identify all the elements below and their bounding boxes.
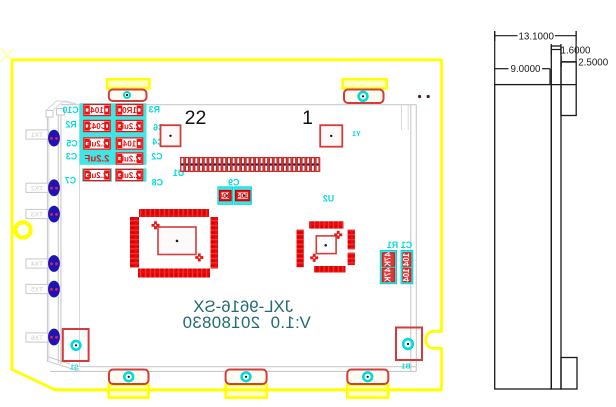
svg-text:TX4: TX4 <box>31 261 43 268</box>
svg-text:104: 104 <box>122 140 136 149</box>
svg-text:47K: 47K <box>384 252 393 267</box>
svg-text:TX3: TX3 <box>31 212 43 219</box>
svg-text:U2: U2 <box>323 193 334 203</box>
svg-text:22: 22 <box>185 107 207 129</box>
svg-text:2.2uF: 2.2uF <box>119 155 140 164</box>
svg-text:C3: C3 <box>66 152 77 162</box>
svg-text:TX6: TX6 <box>31 335 43 342</box>
svg-text:104: 104 <box>219 193 231 200</box>
svg-text:1: 1 <box>302 107 313 129</box>
svg-text:R2: R2 <box>65 119 76 129</box>
svg-text:C043: C043 <box>87 122 107 131</box>
svg-text:TX5: TX5 <box>31 287 43 294</box>
svg-text:2.2uF: 2.2uF <box>86 171 107 180</box>
svg-text:C5: C5 <box>66 138 77 148</box>
svg-text:R3: R3 <box>149 105 160 115</box>
svg-text:C1: C1 <box>401 240 412 250</box>
svg-text:V:1.0 20180830: V:1.0 20180830 <box>182 313 311 332</box>
svg-text:2.5000: 2.5000 <box>578 58 609 69</box>
svg-text:C9: C9 <box>228 177 239 187</box>
svg-text:9.0000: 9.0000 <box>511 64 542 75</box>
svg-text:TX1: TX1 <box>31 132 43 139</box>
svg-text:104: 104 <box>236 193 248 200</box>
svg-text:C8: C8 <box>152 178 163 188</box>
svg-text:S1: S1 <box>70 364 79 371</box>
svg-text:47K: 47K <box>384 268 393 283</box>
svg-text:B1: B1 <box>401 363 410 370</box>
svg-text:1.6000: 1.6000 <box>561 45 592 56</box>
svg-text:C10: C10 <box>62 105 78 115</box>
svg-text:2.2uF: 2.2uF <box>119 122 140 131</box>
svg-text:TX2: TX2 <box>31 185 43 192</box>
svg-text:Y1: Y1 <box>352 131 361 138</box>
svg-text:104: 104 <box>90 106 104 115</box>
svg-text:104: 104 <box>402 253 411 267</box>
svg-text:C2: C2 <box>151 152 162 162</box>
svg-text:104: 104 <box>402 268 411 282</box>
svg-text:2.2uF: 2.2uF <box>84 154 109 165</box>
svg-text:C7: C7 <box>65 176 76 186</box>
svg-text:2.2uF: 2.2uF <box>119 171 140 180</box>
svg-text:1R0: 1R0 <box>122 106 137 115</box>
svg-text:13.1000: 13.1000 <box>518 32 554 43</box>
svg-text:2.2uF: 2.2uF <box>86 140 107 149</box>
svg-text:R1: R1 <box>387 240 398 250</box>
